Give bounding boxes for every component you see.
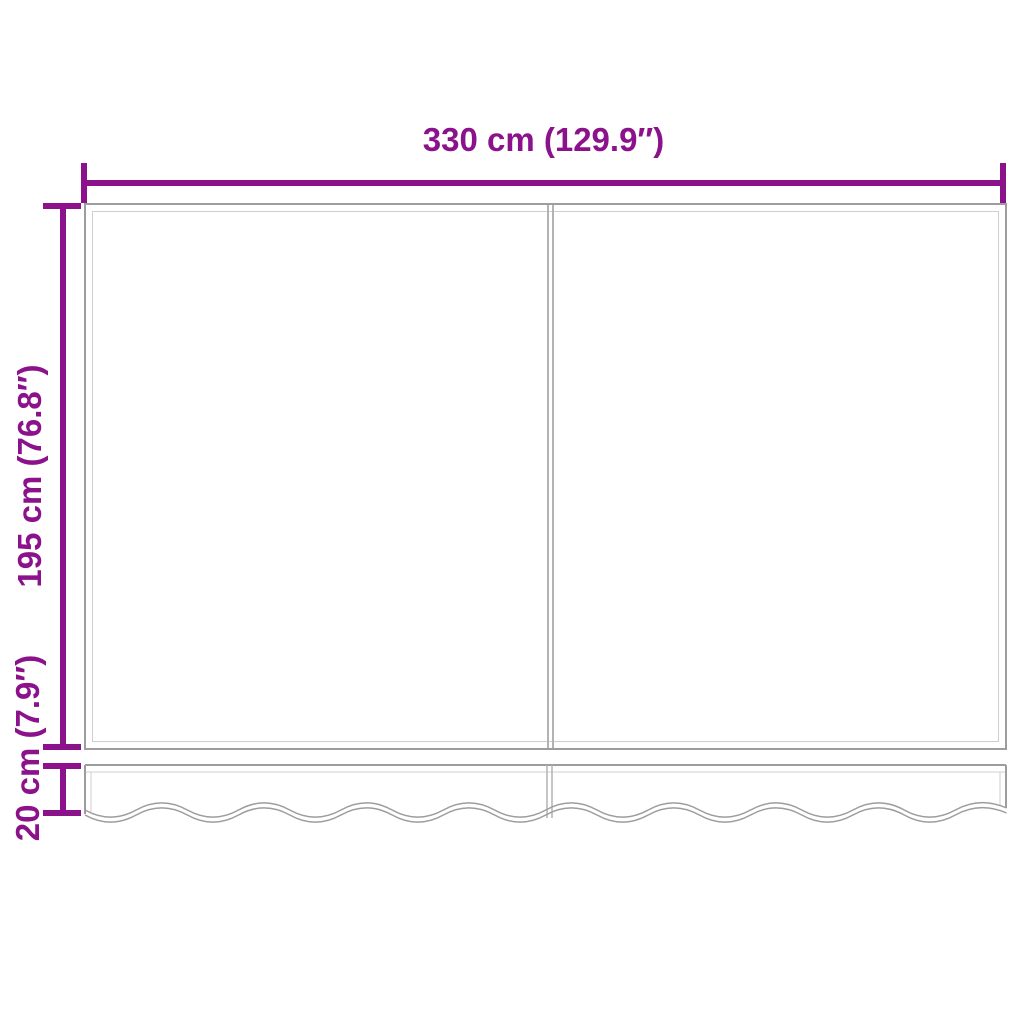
valance-dimension-tick-top [43,763,81,769]
width-dimension-line [84,180,1003,186]
valance-dimension-line [60,763,66,816]
width-dimension-tick-left [81,163,87,203]
height-dimension-tick-top [43,203,81,209]
valance-dimension-tick-bottom [43,810,81,816]
fabric-panel-center-seam-right [552,205,554,748]
fabric-panel-center-seam-left [547,205,549,748]
height-dimension-label: 195 cm (76.8″) [10,316,50,636]
height-dimension-line [60,203,66,750]
width-dimension-tick-right [1000,163,1006,203]
width-dimension-label: 330 cm (129.9″) [84,120,1003,160]
awning-fabric-dimension-diagram: 330 cm (129.9″) 195 cm (76.8″) 20 cm (7.… [0,0,1024,1024]
valance-strip [84,764,1007,836]
height-dimension-tick-bottom [43,744,81,750]
fabric-panel-seam-outline [92,211,999,742]
valance-dimension-label: 20 cm (7.9″) [8,608,48,888]
